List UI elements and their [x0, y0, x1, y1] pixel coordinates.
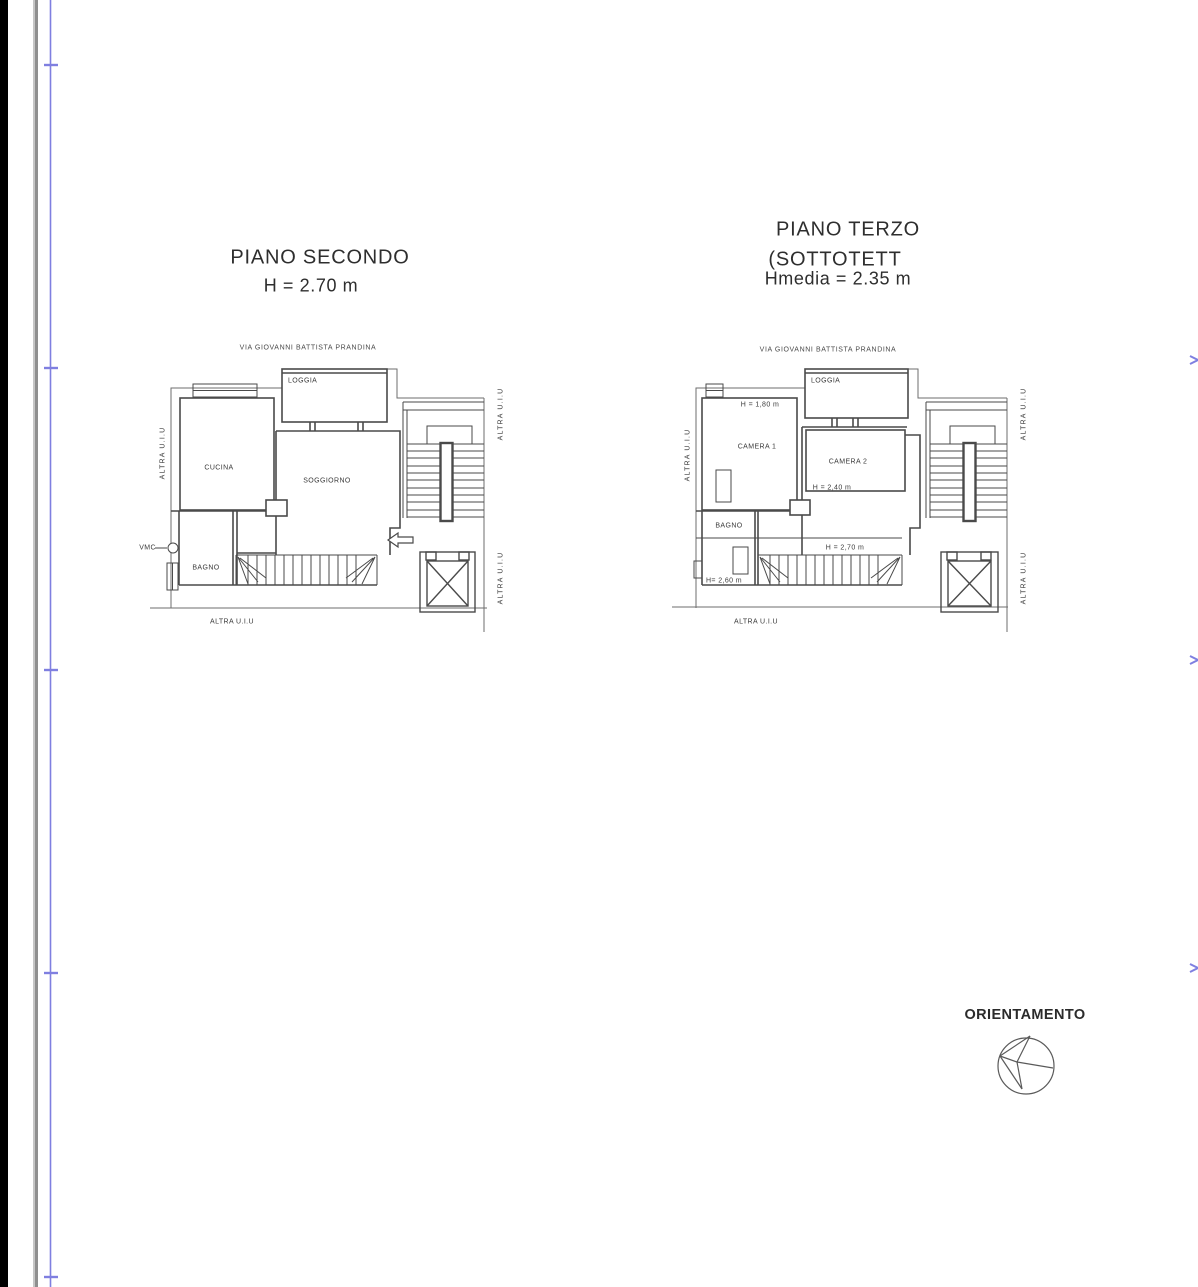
street-label-right-plan: VIA GIOVANNI BATTISTA PRANDINA — [760, 347, 897, 354]
compass-icon — [998, 1036, 1054, 1094]
adjacent-unit-label-right-bottom: ALTRA U.I.U — [498, 552, 505, 605]
title-piano-terzo: PIANO TERZO — [776, 219, 920, 242]
stair-handrail — [964, 443, 976, 521]
boundary-right-plan — [672, 369, 1008, 632]
room-label-loggia: LOGGIA — [288, 378, 317, 385]
elevator-right-plan — [941, 552, 998, 612]
walls-left-plan — [171, 369, 400, 585]
fold-line — [44, 0, 58, 1287]
stair-treads — [930, 444, 1007, 517]
room-label-camera2: CAMERA 2 — [829, 459, 868, 466]
subtitle-piano-secondo-height: H = 2.70 m — [264, 276, 359, 297]
scanned-floor-plan-sheet: PIANO SECONDO H = 2.70 m PIANO TERZO (SO… — [0, 0, 1198, 1287]
stair-handrail — [441, 443, 453, 521]
room-soggiorno-outline — [276, 431, 400, 505]
room-label-loggia: LOGGIA — [811, 378, 840, 385]
height-label-zone: H = 2,70 m — [826, 545, 864, 552]
title-piano-secondo: PIANO SECONDO — [230, 247, 409, 270]
windows-right-plan — [694, 384, 723, 578]
plan-linework — [0, 0, 1198, 1287]
room-loggia-outline — [805, 369, 908, 418]
internal-stair-left-plan — [236, 555, 377, 585]
orientation-label: ORIENTAMENTO — [964, 1007, 1085, 1023]
boundary-left-plan — [150, 369, 487, 632]
elevator-left-plan — [420, 552, 475, 612]
room-label-soggiorno: SOGGIORNO — [303, 478, 351, 485]
vmc-symbol — [155, 543, 178, 553]
stair-treads — [407, 444, 484, 517]
scan-edge-black-strip — [0, 0, 8, 1287]
adjacent-unit-label-right-top: ALTRA U.I.U — [498, 388, 505, 441]
door-symbol — [266, 500, 287, 516]
door-symbol — [790, 500, 810, 515]
scan-gray-line-light — [33, 0, 35, 1287]
piano-terzo-linework — [672, 369, 1008, 632]
subtitle-piano-terzo-height: Hmedia = 2.35 m — [765, 269, 912, 290]
internal-stair-right-plan — [758, 555, 902, 585]
entry-arrow-icon — [388, 533, 413, 547]
height-label-bagno: H= 2,60 m — [706, 578, 742, 585]
scan-gray-line-dark — [35, 0, 38, 1287]
adjacent-unit-label-bottom: ALTRA U.I.U — [734, 619, 778, 626]
height-label-camera2: H = 2,40 m — [813, 485, 851, 492]
walls-right-plan — [696, 369, 920, 585]
fold-marks-right-edge — [1190, 356, 1198, 972]
room-label-cucina: CUCINA — [204, 465, 233, 472]
room-label-bagno: BAGNO — [192, 565, 219, 572]
stairwell-right-plan — [926, 402, 1007, 521]
adjacent-unit-label-left: ALTRA U.I.U — [685, 429, 692, 482]
room-label-camera1: CAMERA 1 — [738, 444, 777, 451]
scan-edge-artifacts — [0, 0, 1198, 1287]
adjacent-unit-label-right-bottom: ALTRA U.I.U — [1021, 552, 1028, 605]
street-label-left-plan: VIA GIOVANNI BATTISTA PRANDINA — [240, 345, 377, 352]
adjacent-unit-label-right-top: ALTRA U.I.U — [1021, 388, 1028, 441]
vmc-label: VMC — [139, 545, 156, 552]
room-label-bagno: BAGNO — [715, 523, 742, 530]
stairwell-left-plan — [403, 402, 484, 521]
adjacent-unit-label-left: ALTRA U.I.U — [160, 427, 167, 480]
room-cucina-outline — [180, 398, 274, 510]
piano-secondo-linework — [150, 369, 487, 632]
height-label-camera1: H = 1,80 m — [741, 402, 779, 409]
adjacent-unit-label-bottom: ALTRA U.I.U — [210, 619, 254, 626]
